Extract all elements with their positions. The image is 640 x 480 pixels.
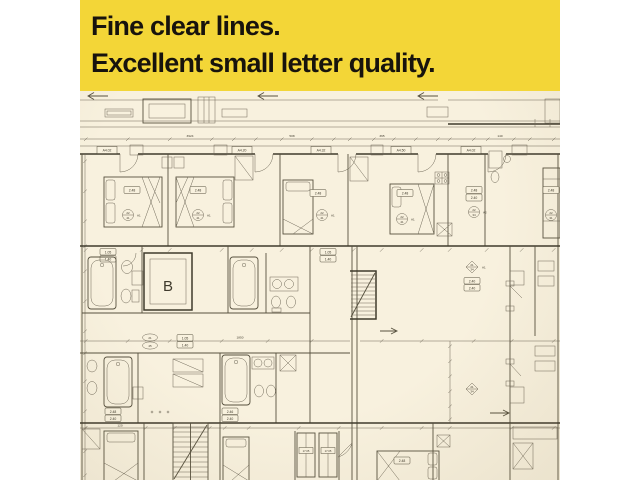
headline-line-1: Fine clear lines.	[91, 8, 560, 45]
room-tag: 2.48	[315, 192, 322, 196]
svg-text:34: 34	[470, 390, 474, 394]
dimension-text: 1850	[237, 336, 244, 340]
floor-plan-drawing: 3924 508 365 140	[80, 91, 560, 480]
door-tag: A4.50	[397, 149, 406, 153]
print-sample-ad: Fine clear lines. Excellent small letter…	[0, 0, 640, 480]
wardrobe-tag: 17.05	[325, 449, 332, 453]
door-tag: A4.20	[238, 149, 247, 153]
window-tag: 1.05	[182, 336, 189, 340]
svg-text:22: 22	[472, 208, 476, 212]
door-tag: A4.02	[103, 149, 112, 153]
svg-text:31: 31	[549, 216, 553, 220]
wardrobe-tag: 17.05	[303, 449, 310, 453]
room-tag: 2.46	[227, 410, 234, 414]
floor-plan-area: 3924 508 365 140	[80, 91, 560, 480]
room-tag: 2.48	[110, 410, 117, 414]
headline-banner: Fine clear lines. Excellent small letter…	[80, 0, 560, 91]
svg-text:A1: A1	[207, 214, 211, 218]
svg-text:21: 21	[470, 263, 474, 267]
dimension-text: 140	[497, 134, 502, 138]
room-tag: 2.48	[548, 189, 555, 193]
room-tag: 2.48	[471, 189, 478, 193]
svg-text:A1: A1	[482, 266, 486, 270]
headline-line-2: Excellent small letter quality.	[91, 45, 560, 82]
svg-text:A1: A1	[411, 218, 415, 222]
svg-text:41: 41	[400, 220, 404, 224]
svg-text:22: 22	[320, 211, 324, 215]
window-tag: 1.05	[325, 250, 332, 254]
svg-text:34: 34	[470, 268, 474, 272]
elevator-label: B	[163, 278, 173, 295]
window-tag: 1.40	[325, 257, 332, 261]
svg-text:41: 41	[126, 216, 130, 220]
room-tag: 2.40	[469, 286, 476, 290]
svg-text:A1: A1	[331, 214, 335, 218]
svg-text:41: 41	[320, 216, 324, 220]
window-tag: 1.40	[182, 343, 189, 347]
room-tag: 2.48	[402, 192, 409, 196]
door-tag: A4.32	[317, 149, 326, 153]
svg-text:22: 22	[196, 211, 200, 215]
window-tag: 1.05	[105, 250, 112, 254]
door-tag: A4.02	[467, 149, 476, 153]
dimension-text: 365	[379, 134, 384, 138]
dimension-text: 120	[117, 424, 122, 428]
svg-text:45: 45	[148, 344, 152, 348]
svg-text:21: 21	[148, 336, 152, 340]
svg-text:22: 22	[549, 211, 553, 215]
svg-text:34: 34	[472, 213, 476, 217]
svg-text:22: 22	[400, 215, 404, 219]
svg-text:A2: A2	[483, 211, 487, 215]
room-tag: 2.40	[110, 417, 117, 421]
svg-text:A1: A1	[137, 214, 141, 218]
svg-text:41: 41	[196, 216, 200, 220]
room-tag: 2.48	[399, 459, 406, 463]
room-tag: 2.40	[471, 196, 478, 200]
room-tag: 2.40	[469, 279, 476, 283]
svg-text:22: 22	[126, 211, 130, 215]
dimension-text: 508	[289, 134, 294, 138]
room-tag: 2.40	[227, 417, 234, 421]
svg-text:21: 21	[470, 385, 474, 389]
room-tag: 2.48	[195, 189, 202, 193]
finish-circle-tag: 22 31	[546, 210, 557, 221]
room-tag: 2.48	[129, 189, 136, 193]
ad-content: Fine clear lines. Excellent small letter…	[80, 0, 560, 480]
dimension-text: 3924	[187, 134, 194, 138]
